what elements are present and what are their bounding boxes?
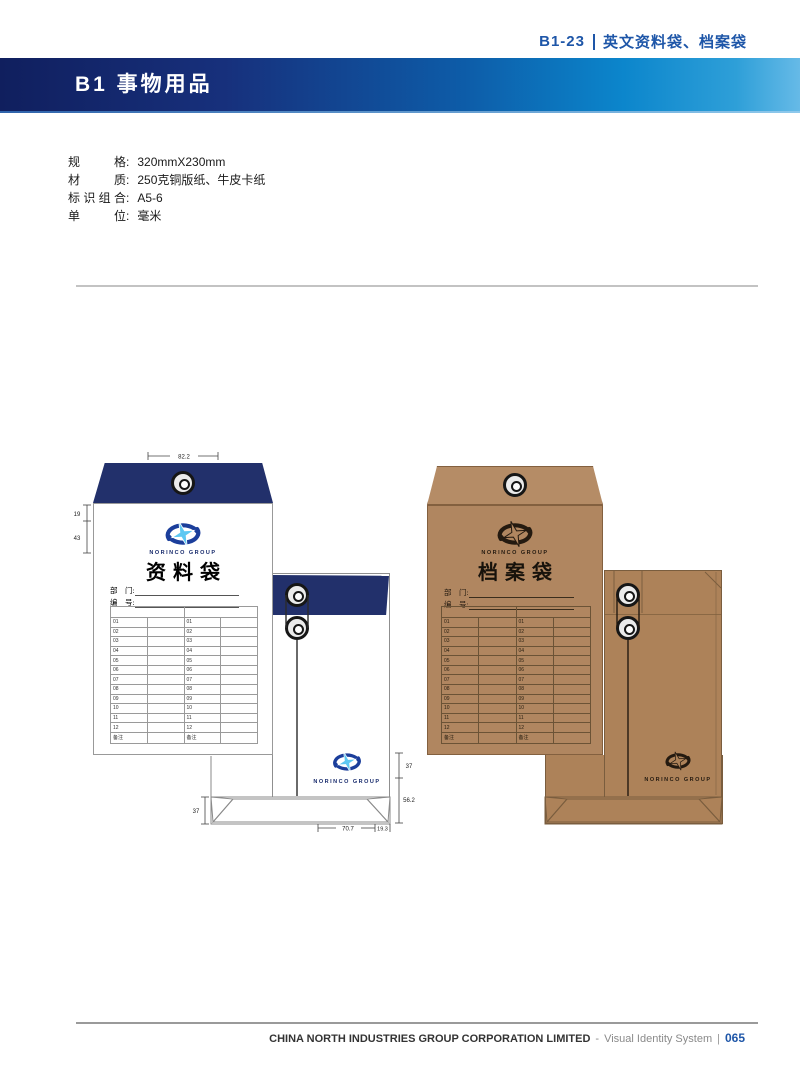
table-row: 1010: [111, 704, 258, 714]
row-blank-cell: [221, 704, 258, 714]
logo-area: [94, 519, 272, 549]
row-blank-cell: [147, 713, 184, 723]
row-blank-cell: [147, 646, 184, 656]
row-number-cell: 03: [442, 637, 479, 647]
row-blank-cell: [479, 723, 516, 733]
row-blank-cell: [221, 637, 258, 647]
envelope-title: 资料袋: [94, 556, 272, 585]
table-header-cell: [184, 607, 258, 618]
spec-value: 250克铜版纸、牛皮卡纸: [137, 171, 265, 189]
row-number-cell: 12: [184, 723, 221, 733]
row-number-cell: 05: [442, 656, 479, 666]
ref-code: B1-23: [539, 33, 585, 50]
row-blank-cell: [147, 665, 184, 675]
row-number-cell: 04: [184, 646, 221, 656]
row-blank-cell: [479, 694, 516, 704]
index-table: 0101020203030404050506060707080809091010…: [110, 606, 258, 744]
table-row: 1111: [111, 713, 258, 723]
logo-area: [428, 519, 602, 549]
back-envelope-logo: NORINCO GROUP: [306, 750, 388, 785]
row-number-cell: 10: [111, 704, 148, 714]
table-row: 0404: [442, 646, 591, 656]
footer-company: CHINA NORTH INDUSTRIES GROUP CORPORATION…: [269, 1033, 590, 1045]
row-blank-cell: [147, 627, 184, 637]
table-row: 0505: [111, 656, 258, 666]
row-number-cell: 09: [442, 694, 479, 704]
row-blank-cell: [479, 732, 516, 743]
table-row: 0707: [442, 675, 591, 685]
row-number-cell: 03: [111, 637, 148, 647]
table-row: 1111: [442, 713, 591, 723]
footer-system: Visual Identity System: [604, 1033, 712, 1045]
row-blank-cell: [553, 618, 590, 628]
footer-divider: [76, 1022, 758, 1024]
norinco-logo-icon: [158, 519, 208, 549]
row-blank-cell: [553, 637, 590, 647]
row-blank-cell: [147, 637, 184, 647]
footer-bar: |: [717, 1033, 720, 1045]
kraft-envelope-front: NORINCO GROUP 档案袋 部 门: 编 号: 010102020303…: [427, 505, 603, 755]
spec-row: 标识组合: A5-6: [68, 189, 265, 207]
title-bar-underline: [0, 111, 800, 113]
row-blank-cell: [221, 713, 258, 723]
page-reference: B1-23 英文资料袋、档案袋: [539, 31, 747, 52]
kraft-envelope-group: NORINCO GROUP NORINCO GROUP 档案袋 部 门:: [420, 430, 760, 840]
table-row: 0909: [111, 694, 258, 704]
index-table-grid: 0101020203030404050506060707080809091010…: [110, 606, 258, 744]
table-row: 0707: [111, 675, 258, 685]
row-blank-cell: [553, 685, 590, 695]
table-row: 0303: [442, 637, 591, 647]
spec-row: 材质: 250克铜版纸、牛皮卡纸: [68, 171, 265, 189]
field-row: 部 门:: [444, 586, 602, 598]
row-number-cell: 10: [184, 704, 221, 714]
spec-row: 规格: 320mmX230mm: [68, 153, 265, 171]
table-header-cell: [111, 607, 185, 618]
row-blank-cell: [479, 675, 516, 685]
spec-value: 320mmX230mm: [137, 153, 225, 171]
row-blank-cell: [479, 637, 516, 647]
row-blank-cell: [553, 656, 590, 666]
row-number-cell: 12: [516, 723, 553, 733]
row-number-cell: 08: [442, 685, 479, 695]
white-envelope-group: NORINCO GROUP NORINCO GROUP 资料袋 部: [60, 430, 420, 850]
table-row: 0909: [442, 694, 591, 704]
section-title: B1 事物用品: [75, 73, 213, 96]
ref-separator: [593, 34, 595, 50]
row-number-cell: 09: [516, 694, 553, 704]
row-blank-cell: [553, 665, 590, 675]
table-row: 0101: [442, 618, 591, 628]
string-tie-button-icon: [285, 616, 309, 640]
row-number-cell: 08: [516, 685, 553, 695]
spec-label: 单位: [68, 207, 126, 225]
row-number-cell: 04: [111, 646, 148, 656]
field-row: 部 门:: [110, 584, 272, 596]
table-header-cell: [442, 607, 517, 618]
row-number-cell: 备注: [442, 732, 479, 743]
row-number-cell: 11: [442, 713, 479, 723]
row-number-cell: 06: [184, 665, 221, 675]
row-number-cell: 06: [442, 665, 479, 675]
table-row: 0505: [442, 656, 591, 666]
row-number-cell: 06: [111, 665, 148, 675]
table-row: 备注备注: [111, 732, 258, 743]
row-number-cell: 12: [111, 723, 148, 733]
field-rows: 部 门: 编 号:: [110, 584, 272, 608]
spec-label: 标识组合: [68, 189, 126, 207]
dim-fold-height: 37: [193, 809, 200, 815]
index-table: 0101020203030404050506060707080809091010…: [441, 606, 591, 744]
envelope-title: 档案袋: [428, 556, 602, 585]
row-number-cell: 10: [442, 704, 479, 714]
table-row: 0202: [442, 627, 591, 637]
row-number-cell: 05: [516, 656, 553, 666]
norinco-logo-icon: [327, 750, 367, 774]
field-underline: [469, 589, 574, 598]
field-label: 部 门:: [110, 585, 135, 596]
row-number-cell: 07: [516, 675, 553, 685]
row-blank-cell: [221, 732, 258, 743]
row-blank-cell: [147, 685, 184, 695]
row-blank-cell: [553, 704, 590, 714]
row-number-cell: 01: [516, 618, 553, 628]
dim-logo-height: 43: [74, 536, 81, 542]
table-row: 0202: [111, 627, 258, 637]
footer: CHINA NORTH INDUSTRIES GROUP CORPORATION…: [269, 1031, 745, 1045]
row-blank-cell: [221, 627, 258, 637]
row-number-cell: 09: [184, 694, 221, 704]
row-number-cell: 07: [111, 675, 148, 685]
string-tie-button-icon: [616, 583, 640, 607]
row-blank-cell: [479, 713, 516, 723]
row-blank-cell: [553, 646, 590, 656]
row-number-cell: 备注: [516, 732, 553, 743]
row-number-cell: 05: [184, 656, 221, 666]
row-number-cell: 07: [184, 675, 221, 685]
dim-flap-height: 19: [74, 512, 81, 518]
footer-dash: -: [595, 1033, 599, 1045]
row-number-cell: 01: [442, 618, 479, 628]
brand-text: NORINCO GROUP: [306, 779, 388, 785]
spec-row: 单位: 毫米: [68, 207, 265, 225]
row-number-cell: 07: [442, 675, 479, 685]
spec-value: 毫米: [137, 207, 161, 225]
brand-text: NORINCO GROUP: [639, 777, 717, 783]
spec-label: 规格: [68, 153, 126, 171]
row-blank-cell: [479, 656, 516, 666]
spec-label: 材质: [68, 171, 126, 189]
row-blank-cell: [221, 646, 258, 656]
table-row: 0303: [111, 637, 258, 647]
norinco-logo-icon: [660, 750, 696, 772]
row-blank-cell: [479, 618, 516, 628]
row-number-cell: 11: [516, 713, 553, 723]
row-blank-cell: [221, 618, 258, 628]
row-blank-cell: [147, 732, 184, 743]
row-number-cell: 备注: [184, 732, 221, 743]
row-blank-cell: [221, 675, 258, 685]
row-number-cell: 04: [442, 646, 479, 656]
table-row: 1010: [442, 704, 591, 714]
table-row: 0404: [111, 646, 258, 656]
string-tie-button-icon: [171, 471, 195, 495]
row-number-cell: 02: [442, 627, 479, 637]
row-blank-cell: [553, 627, 590, 637]
field-label: 部 门:: [444, 587, 469, 598]
back-envelope-logo: NORINCO GROUP: [639, 750, 717, 783]
flap-fold-line: [605, 614, 721, 615]
index-table-grid: 0101020203030404050506060707080809091010…: [441, 606, 591, 744]
ref-title: 英文资料袋、档案袋: [603, 31, 747, 52]
row-blank-cell: [553, 723, 590, 733]
dim-bottom-width: 70.7: [342, 827, 354, 833]
table-row: 0606: [442, 665, 591, 675]
row-number-cell: 02: [516, 627, 553, 637]
row-blank-cell: [479, 704, 516, 714]
string-tie-button-icon: [285, 583, 309, 607]
row-blank-cell: [147, 694, 184, 704]
spec-list: 规格: 320mmX230mm 材质: 250克铜版纸、牛皮卡纸 标识组合: A…: [68, 153, 265, 225]
dim-bottom-height: 56.2: [403, 798, 415, 804]
row-number-cell: 02: [184, 627, 221, 637]
row-number-cell: 05: [111, 656, 148, 666]
section-title-bar: B1 事物用品: [0, 58, 800, 111]
table-header-cell: [516, 607, 591, 618]
table-row: 1212: [111, 723, 258, 733]
row-blank-cell: [553, 694, 590, 704]
row-number-cell: 08: [184, 685, 221, 695]
row-number-cell: 10: [516, 704, 553, 714]
row-number-cell: 01: [184, 618, 221, 628]
spec-value: A5-6: [137, 189, 162, 207]
row-blank-cell: [553, 732, 590, 743]
row-number-cell: 08: [111, 685, 148, 695]
row-number-cell: 06: [516, 665, 553, 675]
white-envelope-face: NORINCO GROUP 资料袋 部 门: 编 号: 010102020303…: [94, 504, 272, 754]
white-envelope-front: NORINCO GROUP 资料袋 部 门: 编 号: 010102020303…: [93, 503, 273, 755]
row-blank-cell: [221, 694, 258, 704]
table-row: 0606: [111, 665, 258, 675]
row-blank-cell: [147, 723, 184, 733]
row-blank-cell: [147, 656, 184, 666]
row-number-cell: 03: [184, 637, 221, 647]
dim-top-width: 82.2: [178, 455, 190, 461]
table-row: 0808: [111, 685, 258, 695]
row-number-cell: 01: [111, 618, 148, 628]
dim-back-logo-height: 37: [406, 764, 413, 770]
row-blank-cell: [479, 685, 516, 695]
table-row: 1212: [442, 723, 591, 733]
vi-manual-page: B1-23 英文资料袋、档案袋 B1 事物用品 规格: 320mmX230mm …: [0, 0, 800, 1085]
string-tie-button-icon: [616, 616, 640, 640]
row-number-cell: 11: [184, 713, 221, 723]
row-blank-cell: [553, 675, 590, 685]
table-row: 0101: [111, 618, 258, 628]
kraft-envelope-face: NORINCO GROUP 档案袋 部 门: 编 号: 010102020303…: [428, 506, 602, 754]
row-blank-cell: [147, 618, 184, 628]
row-blank-cell: [221, 685, 258, 695]
table-row: 0808: [442, 685, 591, 695]
footer-page-number: 065: [725, 1031, 745, 1045]
row-blank-cell: [479, 627, 516, 637]
row-blank-cell: [221, 723, 258, 733]
row-number-cell: 11: [111, 713, 148, 723]
row-number-cell: 04: [516, 646, 553, 656]
string-tie-button-icon: [503, 473, 527, 497]
row-number-cell: 12: [442, 723, 479, 733]
row-blank-cell: [221, 656, 258, 666]
row-blank-cell: [553, 713, 590, 723]
field-underline: [135, 587, 239, 596]
row-number-cell: 备注: [111, 732, 148, 743]
row-number-cell: 03: [516, 637, 553, 647]
dim-side-width: 19.3: [377, 827, 388, 833]
row-blank-cell: [221, 665, 258, 675]
norinco-logo-icon: [490, 519, 540, 549]
table-row: 备注备注: [442, 732, 591, 743]
row-blank-cell: [147, 675, 184, 685]
section-divider: [76, 285, 758, 287]
row-number-cell: 09: [111, 694, 148, 704]
row-blank-cell: [479, 646, 516, 656]
row-number-cell: 02: [111, 627, 148, 637]
row-blank-cell: [479, 665, 516, 675]
row-blank-cell: [147, 704, 184, 714]
